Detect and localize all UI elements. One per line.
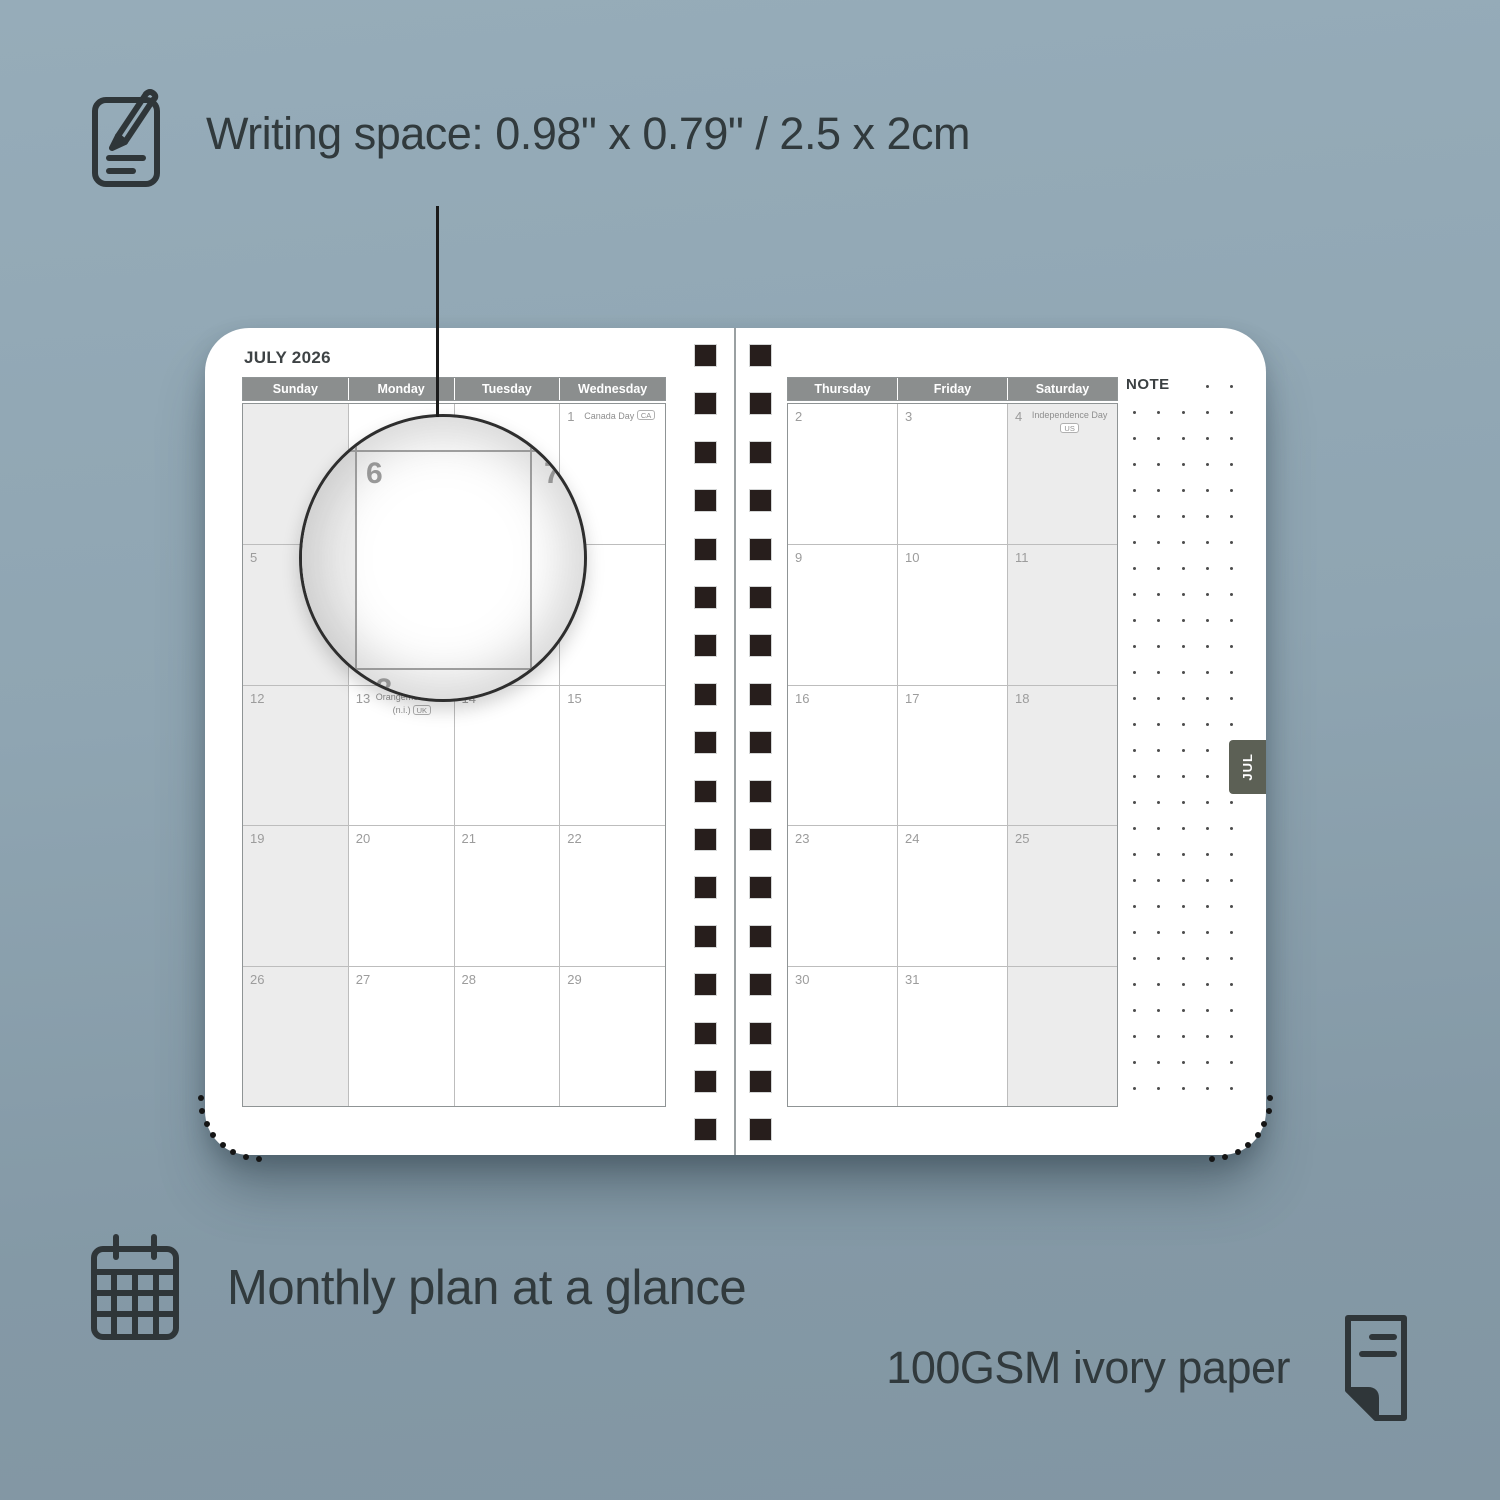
holiday-sub-label: (n.i.)UK (393, 705, 431, 715)
spiral-hole (694, 828, 717, 851)
note-dot (1206, 801, 1209, 804)
note-dot (1133, 983, 1136, 986)
spiral-hole (749, 876, 772, 899)
lens-grid-line (302, 668, 584, 670)
note-dot (1182, 1035, 1185, 1038)
day-cell: 31 (897, 966, 1007, 1106)
note-dot (1157, 1087, 1160, 1090)
note-dot (1157, 775, 1160, 778)
spiral-hole (694, 925, 717, 948)
day-cell: 2 (788, 404, 897, 544)
note-dot (1157, 905, 1160, 908)
note-dot (1230, 489, 1233, 492)
note-dot (1133, 749, 1136, 752)
note-dot (1182, 905, 1185, 908)
note-dot (1133, 1061, 1136, 1064)
note-dot (1157, 723, 1160, 726)
spiral-hole (694, 731, 717, 754)
day-number: 15 (567, 692, 581, 706)
note-dot (1133, 437, 1136, 440)
calendar-week-row: 1213Orangemen's Day(n.i.)UK1415 (243, 685, 665, 825)
note-dot (1206, 671, 1209, 674)
day-number: 23 (795, 832, 809, 846)
note-dot (1182, 1061, 1185, 1064)
calendar-icon (85, 1232, 185, 1344)
day-number: 19 (250, 832, 264, 846)
calendar-week-row: 19202122 (243, 825, 665, 965)
note-dot (1230, 593, 1233, 596)
lens-day-number-right: 7 (544, 459, 561, 489)
day-header-row: ThursdayFridaySaturday (787, 377, 1118, 401)
stitch-dot (1267, 1095, 1273, 1101)
note-dot (1157, 697, 1160, 700)
note-dot (1157, 827, 1160, 830)
day-number: 18 (1015, 692, 1029, 706)
day-number: 3 (905, 410, 912, 424)
note-dot (1206, 1087, 1209, 1090)
note-dot (1230, 697, 1233, 700)
day-number: 24 (905, 832, 919, 846)
note-dot (1157, 645, 1160, 648)
calendar-week-row: 232425 (788, 825, 1117, 965)
day-cell: 26 (243, 966, 348, 1106)
stitch-dot (220, 1142, 226, 1148)
spiral-hole (749, 683, 772, 706)
day-cell: 30 (788, 966, 897, 1106)
stitch-dot (204, 1121, 210, 1127)
day-number: 2 (795, 410, 802, 424)
note-dot (1206, 879, 1209, 882)
note-dot (1157, 515, 1160, 518)
day-cell: 22 (559, 825, 665, 965)
note-dot (1182, 645, 1185, 648)
lens-grid-line (530, 417, 532, 699)
note-dot (1206, 827, 1209, 830)
note-dot (1230, 957, 1233, 960)
spiral-hole (749, 441, 772, 464)
note-dot (1230, 1087, 1233, 1090)
note-dot (1157, 437, 1160, 440)
lens-day-number-main: 6 (366, 459, 383, 489)
note-dot (1182, 957, 1185, 960)
day-cell: 27 (348, 966, 454, 1106)
day-number: 5 (250, 551, 257, 565)
day-number: 26 (250, 973, 264, 987)
day-cell: 25 (1007, 825, 1117, 965)
day-number: 12 (250, 692, 264, 706)
note-dot (1133, 879, 1136, 882)
note-dot (1133, 931, 1136, 934)
note-dot (1133, 801, 1136, 804)
holiday-badge: CA (637, 410, 655, 420)
note-dot (1157, 1009, 1160, 1012)
day-cell: 23 (788, 825, 897, 965)
note-dot (1133, 489, 1136, 492)
calendar-week-row: 26272829 (243, 966, 665, 1106)
note-dot (1133, 567, 1136, 570)
monthly-plan-label: Monthly plan at a glance (227, 1260, 746, 1316)
day-header-cell: Friday (897, 378, 1007, 400)
day-header-cell: Wednesday (559, 378, 665, 400)
holiday-badge: US (1060, 423, 1078, 433)
note-dot (1206, 437, 1209, 440)
calendar-grid-right: ThursdayFridaySaturday234Independence Da… (787, 377, 1118, 1107)
note-dot (1182, 671, 1185, 674)
day-number: 16 (795, 692, 809, 706)
spiral-hole (694, 1118, 717, 1141)
day-header-cell: Tuesday (454, 378, 560, 400)
spiral-hole (694, 489, 717, 512)
note-label: NOTE (1126, 376, 1170, 393)
calendar-body: 234Independence DayUS9101116171823242530… (787, 403, 1118, 1107)
note-dot (1206, 385, 1209, 388)
note-dot (1133, 723, 1136, 726)
note-dot (1230, 879, 1233, 882)
note-dot (1157, 957, 1160, 960)
note-dot (1182, 567, 1185, 570)
holiday-sub-label: US (1060, 423, 1078, 433)
note-dot (1157, 619, 1160, 622)
note-dot (1182, 489, 1185, 492)
note-dot (1182, 879, 1185, 882)
note-dot (1206, 463, 1209, 466)
holiday-note: (n.i.) (393, 705, 411, 715)
note-dot (1230, 853, 1233, 856)
calendar-week-row: 161718 (788, 685, 1117, 825)
day-cell: 3 (897, 404, 1007, 544)
spiral-hole (749, 344, 772, 367)
note-dot (1182, 619, 1185, 622)
day-number: 20 (356, 832, 370, 846)
note-dot (1230, 385, 1233, 388)
note-dot (1157, 593, 1160, 596)
calendar-week-row: 3031 (788, 966, 1117, 1106)
note-dot (1157, 671, 1160, 674)
spiral-hole (694, 780, 717, 803)
stitch-dot (256, 1156, 262, 1162)
product-infographic: Writing space: 0.98" x 0.79" / 2.5 x 2cm… (0, 0, 1500, 1500)
spiral-hole (694, 392, 717, 415)
note-dot (1133, 1009, 1136, 1012)
spiral-hole (749, 780, 772, 803)
note-dot (1206, 1061, 1209, 1064)
note-dot (1230, 801, 1233, 804)
note-dot (1230, 983, 1233, 986)
note-dot (1230, 671, 1233, 674)
note-dot (1230, 905, 1233, 908)
day-number: 25 (1015, 832, 1029, 846)
stitch-dot (1235, 1149, 1241, 1155)
stitch-dot (210, 1132, 216, 1138)
pointer-line (436, 206, 439, 417)
note-dot (1157, 749, 1160, 752)
day-cell: 19 (243, 825, 348, 965)
note-dot (1157, 1035, 1160, 1038)
note-dot (1230, 437, 1233, 440)
spiral-hole (694, 683, 717, 706)
spiral-hole (694, 586, 717, 609)
note-dot (1157, 567, 1160, 570)
stitch-dot (1255, 1132, 1261, 1138)
note-dot (1157, 931, 1160, 934)
note-dot (1133, 775, 1136, 778)
note-dot (1206, 853, 1209, 856)
note-dot (1206, 723, 1209, 726)
calendar-week-row: 234Independence DayUS (788, 404, 1117, 544)
stitch-dot (243, 1154, 249, 1160)
calendar-week-row: 91011 (788, 544, 1117, 684)
note-dot (1206, 1035, 1209, 1038)
note-dot (1182, 853, 1185, 856)
month-title: JULY 2026 (244, 348, 331, 368)
stitch-dot (1209, 1156, 1215, 1162)
spiral-hole (694, 441, 717, 464)
note-dot (1206, 541, 1209, 544)
note-dot (1230, 931, 1233, 934)
note-dot (1206, 489, 1209, 492)
lens-grid-line (302, 450, 584, 452)
note-dot (1230, 515, 1233, 518)
note-dot (1157, 489, 1160, 492)
day-header-row: SundayMondayTuesdayWednesday (242, 377, 666, 401)
day-cell: 11 (1007, 544, 1117, 684)
note-dot (1230, 411, 1233, 414)
note-dot (1182, 983, 1185, 986)
paper-icon (1326, 1312, 1412, 1424)
note-dot (1182, 931, 1185, 934)
day-number: 11 (1015, 551, 1029, 565)
note-dot (1133, 1035, 1136, 1038)
note-dot (1157, 463, 1160, 466)
note-dot (1133, 411, 1136, 414)
note-dot (1133, 463, 1136, 466)
spiral-hole (749, 489, 772, 512)
day-number: 30 (795, 973, 809, 987)
note-dot (1230, 463, 1233, 466)
spiral-hole (694, 1070, 717, 1093)
stitch-dot (1266, 1108, 1272, 1114)
note-dot (1182, 827, 1185, 830)
note-dot (1206, 983, 1209, 986)
note-dot (1206, 957, 1209, 960)
note-dot (1206, 515, 1209, 518)
note-dot (1182, 411, 1185, 414)
day-number: 27 (356, 973, 370, 987)
page-divider (734, 328, 736, 1155)
writing-space-annotation: Writing space: 0.98" x 0.79" / 2.5 x 2cm (88, 78, 970, 190)
spiral-hole (749, 538, 772, 561)
day-cell: 18 (1007, 685, 1117, 825)
note-dot (1206, 411, 1209, 414)
note-dot (1206, 931, 1209, 934)
note-dot (1133, 593, 1136, 596)
note-dot (1230, 827, 1233, 830)
writing-space-label: Writing space: 0.98" x 0.79" / 2.5 x 2cm (206, 108, 970, 160)
note-dot (1133, 827, 1136, 830)
spiral-hole (749, 586, 772, 609)
stitch-dot (198, 1095, 204, 1101)
spiral-hole (694, 1022, 717, 1045)
note-dot (1182, 515, 1185, 518)
note-dot (1157, 879, 1160, 882)
note-dot (1182, 1087, 1185, 1090)
note-dot (1133, 697, 1136, 700)
note-dot (1157, 853, 1160, 856)
note-dot (1206, 593, 1209, 596)
lens-weekend-shade (302, 417, 356, 699)
day-number: 10 (905, 551, 919, 565)
note-dot (1157, 541, 1160, 544)
note-dot (1206, 619, 1209, 622)
note-dot (1230, 567, 1233, 570)
stitch-dot (1261, 1121, 1267, 1127)
lens-grid-line (355, 417, 357, 699)
day-cell: 21 (454, 825, 560, 965)
note-dot (1182, 1009, 1185, 1012)
day-number: 31 (905, 973, 919, 987)
spiral-hole (749, 1118, 772, 1141)
stitch-dot (230, 1149, 236, 1155)
month-tab: JUL (1229, 740, 1266, 794)
holiday-badge: UK (413, 705, 431, 715)
day-cell (1007, 966, 1117, 1106)
note-dot (1230, 645, 1233, 648)
day-cell: 10 (897, 544, 1007, 684)
note-dot (1133, 671, 1136, 674)
day-header-cell: Saturday (1007, 378, 1117, 400)
note-dot (1133, 905, 1136, 908)
day-number: 1 (567, 410, 574, 424)
day-number: 21 (462, 832, 476, 846)
day-cell: 4Independence DayUS (1007, 404, 1117, 544)
note-dot (1157, 1061, 1160, 1064)
note-dot (1182, 463, 1185, 466)
note-dot (1230, 541, 1233, 544)
spiral-hole (749, 1022, 772, 1045)
note-dot (1182, 593, 1185, 596)
note-dot (1133, 619, 1136, 622)
spiral-hole (749, 973, 772, 996)
note-dot (1230, 1061, 1233, 1064)
day-number: 17 (905, 692, 919, 706)
spiral-hole (749, 634, 772, 657)
spiral-hole (749, 392, 772, 415)
paper-label: 100GSM ivory paper (886, 1342, 1290, 1394)
monthly-plan-annotation: Monthly plan at a glance (85, 1232, 746, 1344)
spiral-hole (749, 925, 772, 948)
day-header-cell: Sunday (243, 378, 348, 400)
day-number: 28 (462, 973, 476, 987)
day-cell: 13Orangemen's Day(n.i.)UK (348, 685, 454, 825)
note-dot (1206, 1009, 1209, 1012)
paper-annotation: 100GSM ivory paper (886, 1312, 1412, 1424)
note-dot (1182, 437, 1185, 440)
day-number: 4 (1015, 410, 1022, 424)
spiral-hole (749, 731, 772, 754)
note-dot (1206, 697, 1209, 700)
day-cell: 28 (454, 966, 560, 1106)
note-dot (1133, 853, 1136, 856)
holiday-label: Canada Day CA (584, 410, 655, 422)
day-cell: 16 (788, 685, 897, 825)
stitch-dot (1245, 1142, 1251, 1148)
spiral-hole (749, 828, 772, 851)
day-cell: 15 (559, 685, 665, 825)
note-dot (1182, 775, 1185, 778)
note-dot (1230, 1035, 1233, 1038)
spiral-hole (694, 973, 717, 996)
month-tab-label: JUL (1240, 753, 1255, 781)
note-dot (1182, 697, 1185, 700)
note-dot (1206, 775, 1209, 778)
note-dot (1182, 801, 1185, 804)
note-dot (1157, 411, 1160, 414)
note-dot (1206, 645, 1209, 648)
note-dot (1182, 541, 1185, 544)
day-cell: 24 (897, 825, 1007, 965)
note-dot (1206, 905, 1209, 908)
note-dot (1206, 749, 1209, 752)
spiral-hole (694, 344, 717, 367)
note-dot (1182, 749, 1185, 752)
notepad-pencil-icon (88, 78, 176, 190)
note-dot (1157, 983, 1160, 986)
note-dot (1230, 723, 1233, 726)
day-cell: 14 (454, 685, 560, 825)
note-dot (1133, 541, 1136, 544)
stitch-dot (199, 1108, 205, 1114)
day-cell: 9 (788, 544, 897, 684)
spiral-hole (694, 876, 717, 899)
day-number: 22 (567, 832, 581, 846)
note-dot (1133, 1087, 1136, 1090)
day-cell: 12 (243, 685, 348, 825)
note-dot (1133, 645, 1136, 648)
day-number: 9 (795, 551, 802, 565)
note-dot (1157, 801, 1160, 804)
holiday-label: Independence Day (1032, 410, 1108, 421)
day-number: 29 (567, 973, 581, 987)
spiral-hole (694, 538, 717, 561)
note-dot (1206, 567, 1209, 570)
spiral-hole (694, 634, 717, 657)
day-cell: 20 (348, 825, 454, 965)
note-dot (1133, 957, 1136, 960)
lens-day-number-bottom: 13 (359, 675, 392, 702)
magnifier-lens: 6 7 13 (299, 414, 587, 702)
note-dot (1230, 1009, 1233, 1012)
note-dot (1230, 619, 1233, 622)
note-dot (1133, 515, 1136, 518)
note-dot (1182, 723, 1185, 726)
spiral-hole (749, 1070, 772, 1093)
stitch-dot (1222, 1154, 1228, 1160)
day-cell: 29 (559, 966, 665, 1106)
day-cell: 17 (897, 685, 1007, 825)
day-header-cell: Thursday (788, 378, 897, 400)
